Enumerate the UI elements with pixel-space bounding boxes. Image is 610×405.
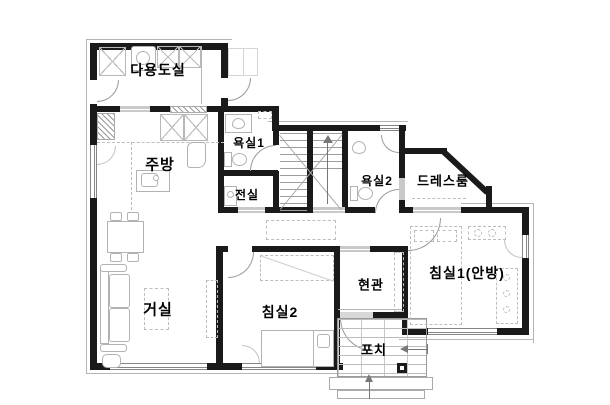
hanger-icon <box>503 290 510 297</box>
toilet-bowl-icon <box>232 153 247 166</box>
utility-divider-line <box>201 46 202 104</box>
closet-rod-line <box>412 198 466 199</box>
dimension-line <box>407 349 427 350</box>
dining-table-icon <box>107 221 144 253</box>
faucet-icon <box>153 175 159 181</box>
toilet-tank-icon <box>224 152 232 167</box>
outline-line <box>86 373 346 374</box>
basin-bowl-icon <box>227 191 234 198</box>
dimension-arrow-up <box>365 374 373 382</box>
cabinet-icon <box>184 114 208 141</box>
dimension-arrow-left <box>400 345 408 353</box>
chair-icon <box>110 253 122 262</box>
stair-treads <box>280 133 307 213</box>
wall <box>150 106 170 112</box>
bed-line <box>313 330 314 367</box>
pantry-icon <box>97 113 115 140</box>
hanger-icon <box>503 306 510 313</box>
window <box>380 125 399 131</box>
cabinet-icon <box>160 114 184 141</box>
wall <box>90 198 97 370</box>
exterior-step-line <box>243 48 244 76</box>
room-label-utility-room: 다용도실 <box>130 63 186 77</box>
porch-step <box>329 377 433 390</box>
wall <box>399 207 413 213</box>
sofa-arm-icon <box>100 264 127 272</box>
stair-overhead-dashed <box>266 220 336 240</box>
outline-line <box>533 203 534 343</box>
door-arc <box>228 252 254 278</box>
wall <box>522 258 529 335</box>
wall <box>207 363 242 370</box>
window-swing-arc <box>97 146 116 165</box>
sofa-cushion-icon <box>109 308 130 342</box>
entrance-opening <box>340 246 370 252</box>
wall <box>97 106 120 112</box>
tv-console-icon <box>206 280 218 338</box>
wall <box>497 328 529 335</box>
room-label-kitchen: 주방 <box>145 158 175 173</box>
wall <box>273 171 279 213</box>
shoe-closet-icon <box>394 252 404 312</box>
shelf-icon <box>258 111 272 119</box>
pillow-icon <box>317 334 330 348</box>
room-label-bedroom-1: 침실1(안방) <box>429 266 505 280</box>
entrance-threshold-line <box>338 309 402 310</box>
wall <box>522 207 529 235</box>
pillow-icon <box>437 230 457 242</box>
ottoman-icon <box>102 354 121 368</box>
room-label-living-room: 거실 <box>143 303 173 318</box>
dimension-tick <box>427 344 428 354</box>
room-label-vestibule: 전실 <box>235 189 259 201</box>
window <box>522 235 529 258</box>
room-label-dress-room: 드레스룸 <box>417 175 469 188</box>
window-swing-arc <box>242 345 260 363</box>
dresser-knob-icon <box>474 229 482 237</box>
chair-icon <box>110 212 122 221</box>
window <box>428 328 497 335</box>
dresser-knob-icon <box>488 229 496 237</box>
room-label-entrance: 현관 <box>358 279 384 292</box>
sofa-back-icon <box>100 270 109 344</box>
outline-line <box>86 39 232 40</box>
window-swing-arc <box>504 240 522 258</box>
door-arc <box>228 78 251 101</box>
bathroom2-niche <box>399 178 405 200</box>
outline-line <box>268 121 408 122</box>
sink-icon <box>232 118 245 129</box>
wall <box>345 207 375 213</box>
floor-plan: 다용도실 주방 욕실1 전실 욕실2 드레스룸 거실 침실2 현관 침실1(안방… <box>0 0 610 405</box>
wall <box>252 246 340 252</box>
wall <box>221 43 228 78</box>
wall <box>90 104 97 145</box>
room-label-bathroom-1: 욕실1 <box>233 137 265 149</box>
door-arc <box>97 80 119 102</box>
sofa-arm-icon <box>100 344 127 352</box>
wall <box>222 207 238 213</box>
door-arc <box>375 189 399 213</box>
outline-line <box>461 203 533 204</box>
step-hatch <box>170 106 207 113</box>
room-label-bedroom-2: 침실2 <box>262 305 299 319</box>
counter-dashed-line <box>131 142 132 210</box>
wall <box>342 131 348 213</box>
pillow-icon <box>414 230 434 242</box>
window <box>90 145 97 198</box>
shower-door-arc <box>381 135 399 153</box>
porch-step <box>337 390 425 399</box>
stair-direction-line <box>327 142 328 204</box>
cooktop-icon <box>187 142 206 168</box>
sink-icon <box>352 141 366 154</box>
stair-direction-arrow <box>323 135 333 143</box>
window <box>110 363 207 370</box>
sofa-cushion-icon <box>109 274 130 308</box>
dressroom-opening <box>413 207 461 213</box>
chair-icon <box>127 212 139 221</box>
wall <box>461 207 529 213</box>
chair-icon <box>127 253 139 262</box>
room-label-porch: 포치 <box>361 344 387 357</box>
pass-opening <box>120 106 150 112</box>
outline-line <box>86 39 87 374</box>
wall <box>90 43 97 80</box>
dimension-line <box>369 381 370 399</box>
toilet-bowl-icon <box>358 187 373 200</box>
wall <box>273 106 279 145</box>
toilet-tank-icon <box>350 186 358 201</box>
room-label-bathroom-2: 욕실2 <box>361 175 393 187</box>
wall <box>272 125 380 131</box>
vestibule-opening <box>238 207 265 213</box>
porch-column-center <box>400 366 404 370</box>
cabinet-icon <box>99 47 126 76</box>
